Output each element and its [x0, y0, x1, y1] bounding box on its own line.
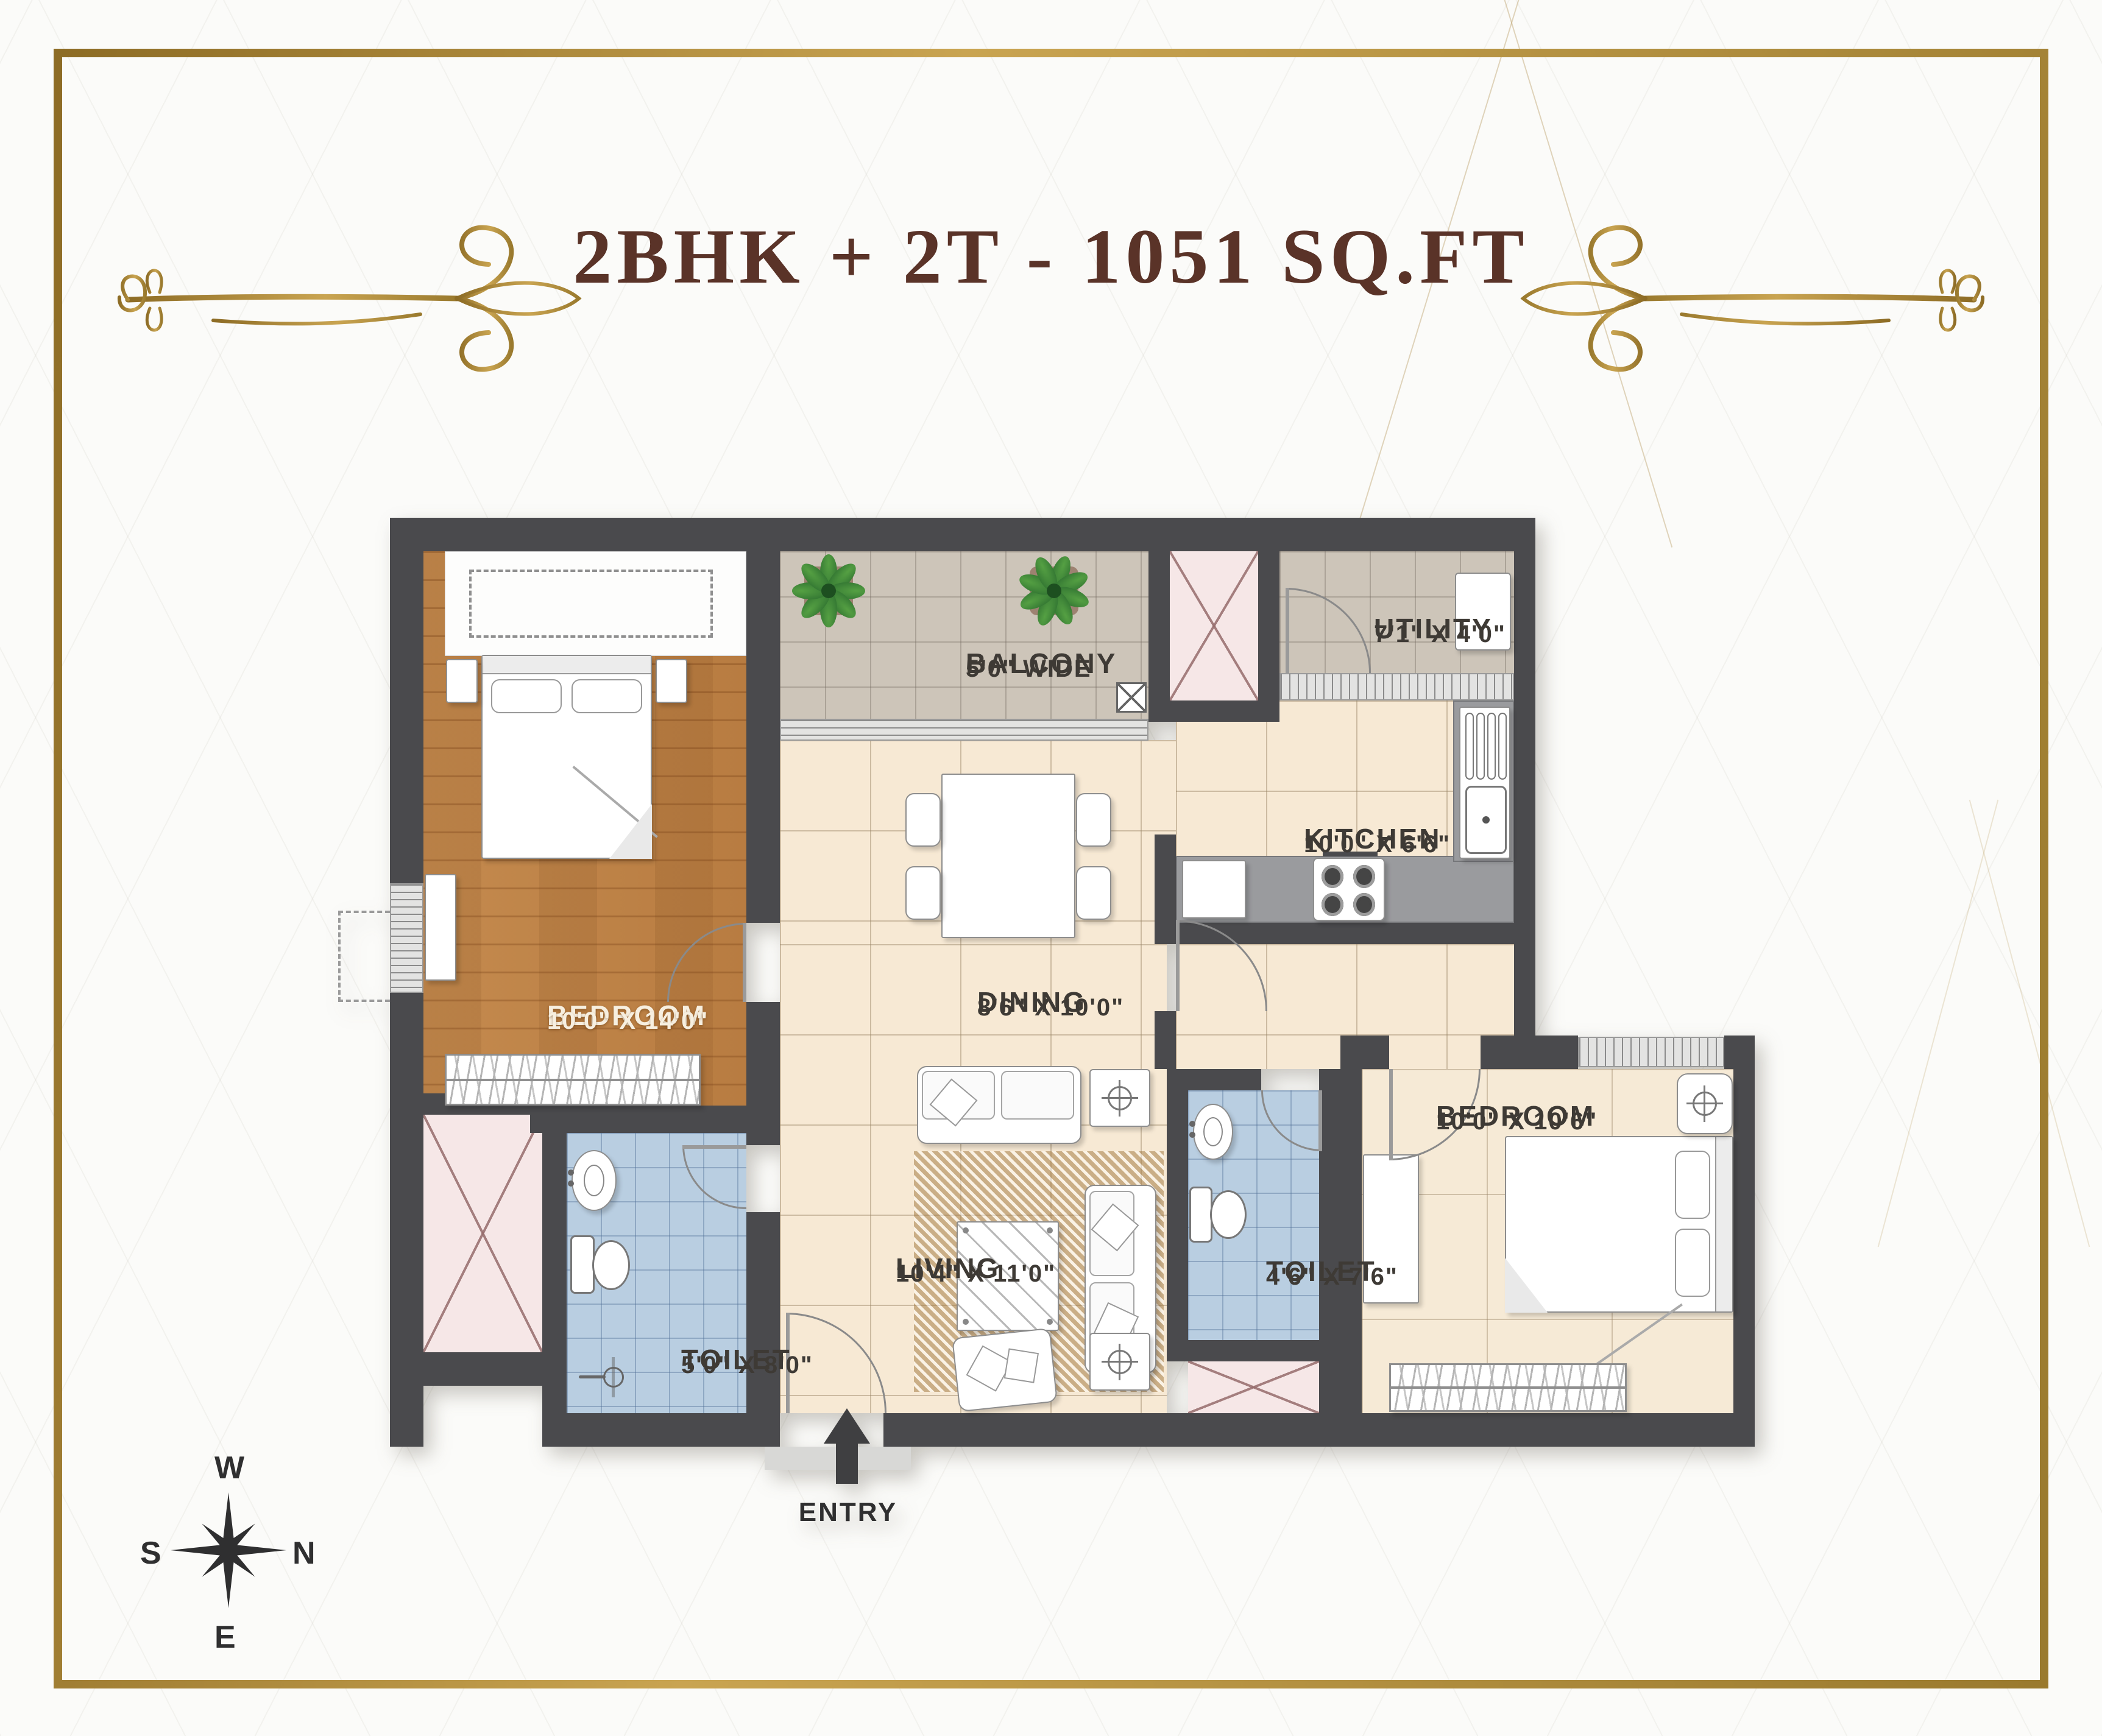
drain-box-icon [1116, 682, 1147, 713]
drainboard-bar [1465, 713, 1474, 780]
wall [746, 1002, 780, 1145]
compass-bottom: E [214, 1619, 236, 1656]
floor-plan-page: 2BHK + 2T - 1051 SQ.FT [0, 0, 2102, 1736]
dining-chair [905, 866, 941, 920]
door-leaf [1286, 588, 1289, 673]
shower-icon [579, 1357, 634, 1400]
duct-shaft [1188, 1361, 1319, 1413]
sofa-icon [917, 1066, 1081, 1144]
bed-icon [481, 655, 652, 859]
dining-chair [1076, 866, 1111, 920]
blanket-fold [1505, 1258, 1548, 1313]
side-table [1089, 1333, 1150, 1391]
plant-center [821, 584, 836, 598]
washbasin-icon [572, 1150, 617, 1211]
wall [1319, 1069, 1362, 1413]
table-corner-dot [963, 1319, 969, 1325]
door-leaf [743, 923, 746, 1002]
burner [1322, 893, 1343, 916]
bed-icon [1505, 1136, 1733, 1313]
wall [1167, 1090, 1188, 1340]
bed-headboard [483, 656, 651, 674]
wall [1258, 551, 1279, 700]
utility-threshold-window [1279, 673, 1514, 700]
bed-pillow [1675, 1229, 1710, 1297]
sink-icon [1459, 707, 1510, 859]
exterior-projection-dashed-marker [338, 911, 390, 1002]
wall [542, 1413, 780, 1447]
tap-dot [568, 1170, 574, 1176]
bed-pillow [572, 679, 642, 713]
drainboard-bar [1476, 713, 1485, 780]
bedroom2-window [1578, 1037, 1724, 1067]
plant-icon [1017, 554, 1091, 627]
wc-bowl [592, 1240, 630, 1290]
wc-icon [570, 1229, 631, 1302]
page-title: 2BHK + 2T - 1051 SQ.FT [573, 212, 1529, 302]
wall [1155, 1011, 1176, 1069]
door-leaf [682, 1145, 746, 1149]
wall [1148, 551, 1170, 719]
drainboard-bar [1487, 713, 1496, 780]
table-corner-dot [1047, 1227, 1053, 1233]
dining-chair [1076, 793, 1111, 847]
bedroom1-window [390, 883, 423, 993]
wall [1733, 1036, 1755, 1447]
compass-top: W [214, 1450, 244, 1486]
duct-shaft [423, 1115, 542, 1352]
armchair-icon [952, 1328, 1058, 1412]
flourish-ornament-icon [1474, 201, 2011, 396]
duct-shaft [1170, 551, 1258, 700]
entry-label: ENTRY [799, 1497, 898, 1528]
drainboard-bar [1498, 713, 1507, 780]
wall [746, 551, 780, 923]
bed-pillow [491, 679, 562, 713]
floor-plan: BALCONY 5'0" WIDE UTILITY 7'1" X 4'0" KI… [390, 518, 1761, 1590]
wall [1340, 1036, 1389, 1069]
tap-dot [1189, 1121, 1195, 1127]
compass-rose-icon: W N E S [140, 1450, 311, 1645]
burner [1353, 893, 1375, 916]
decor-cross [1102, 1097, 1138, 1099]
dresser [425, 874, 456, 981]
basin-bowl [1203, 1117, 1223, 1146]
wall [1481, 1036, 1578, 1069]
wc-tank [570, 1235, 595, 1294]
wall [1155, 834, 1176, 944]
wall [1514, 518, 1535, 1069]
door-leaf [1176, 920, 1180, 1011]
dining-chair [905, 793, 941, 847]
throw-pillow [1004, 1348, 1039, 1383]
wall [746, 1212, 780, 1413]
sofa-cushion [1001, 1071, 1074, 1120]
wc-bowl [1210, 1190, 1247, 1239]
bedside-table [1677, 1073, 1733, 1134]
side-table [1089, 1069, 1150, 1127]
balcony-sliding-window [780, 719, 1148, 741]
washbasin-icon [1193, 1104, 1233, 1160]
plant-center [1047, 584, 1061, 598]
table-corner-dot [963, 1227, 969, 1233]
tap-dot [1189, 1132, 1195, 1138]
bedroom1-niche-dashed-marker [469, 570, 713, 638]
wall [390, 1352, 567, 1386]
plant-icon [792, 554, 865, 627]
compass-star [171, 1492, 286, 1608]
basin-bowl [584, 1165, 604, 1196]
wardrobe [1389, 1363, 1627, 1412]
wall [883, 1413, 1755, 1447]
wc-icon [1189, 1182, 1250, 1252]
wc-tank [1189, 1187, 1212, 1243]
wall [1167, 1069, 1261, 1090]
wall [1148, 700, 1279, 722]
stove-icon [1313, 858, 1385, 921]
burner [1353, 865, 1375, 888]
bed-headboard [1715, 1137, 1732, 1311]
decor-cross [1102, 1361, 1138, 1363]
sink-drain [1482, 816, 1490, 824]
bed-pillow [1675, 1151, 1710, 1219]
wall [390, 518, 1535, 551]
kitchen-cabinet [1182, 860, 1246, 919]
shower-arm [579, 1375, 606, 1378]
door-leaf [1318, 1090, 1322, 1151]
shower-cross [612, 1357, 615, 1397]
table-corner-dot [1047, 1319, 1053, 1325]
blanket-fold [609, 804, 652, 859]
bedside-table [446, 659, 478, 703]
bedside-table [656, 659, 687, 703]
tap-dot [568, 1180, 574, 1187]
lamp-cross [1686, 1103, 1723, 1104]
burner [1322, 865, 1343, 888]
entry-arrow-icon [836, 1442, 858, 1484]
compass-left: S [140, 1535, 161, 1572]
dining-table [941, 774, 1075, 938]
door-leaf [1389, 1069, 1393, 1160]
wardrobe [445, 1054, 701, 1106]
wall [1167, 1340, 1319, 1361]
entry-arrow-icon [824, 1408, 870, 1444]
compass-right: N [292, 1535, 316, 1572]
flourish-ornament-icon [91, 201, 628, 396]
